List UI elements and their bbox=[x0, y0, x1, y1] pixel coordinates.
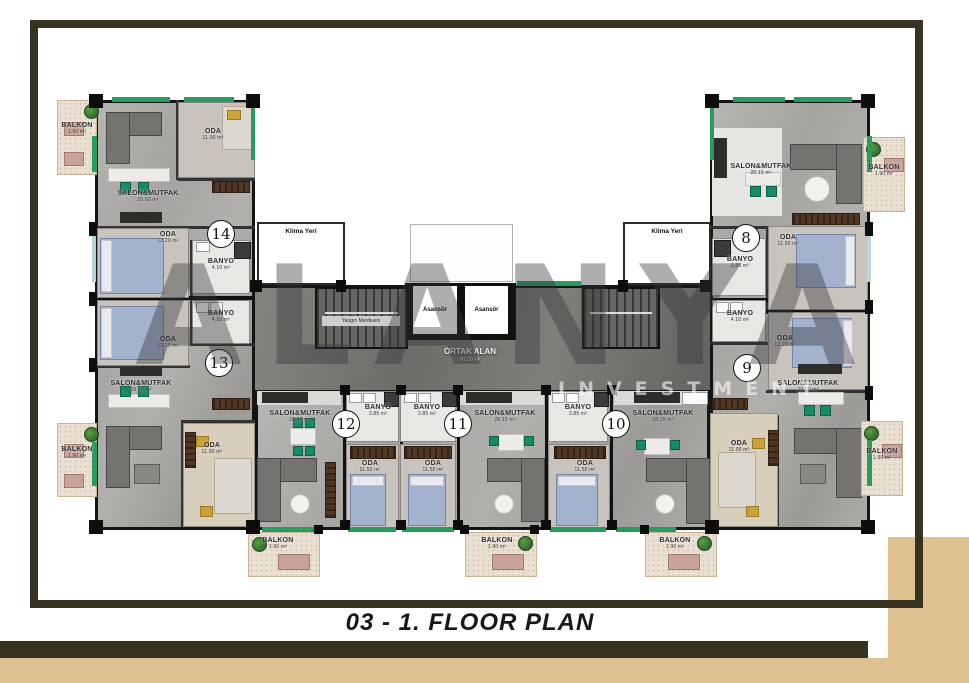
bottom-dark-bar bbox=[0, 641, 868, 658]
plan-title: 03 - 1. FLOOR PLAN bbox=[0, 609, 940, 637]
plan-border-frame bbox=[30, 20, 923, 608]
tan-bottom-strip bbox=[0, 658, 969, 683]
floor-plan-page: 03 - 1. FLOOR PLAN Klima Yeri Klima Yeri… bbox=[0, 0, 969, 683]
